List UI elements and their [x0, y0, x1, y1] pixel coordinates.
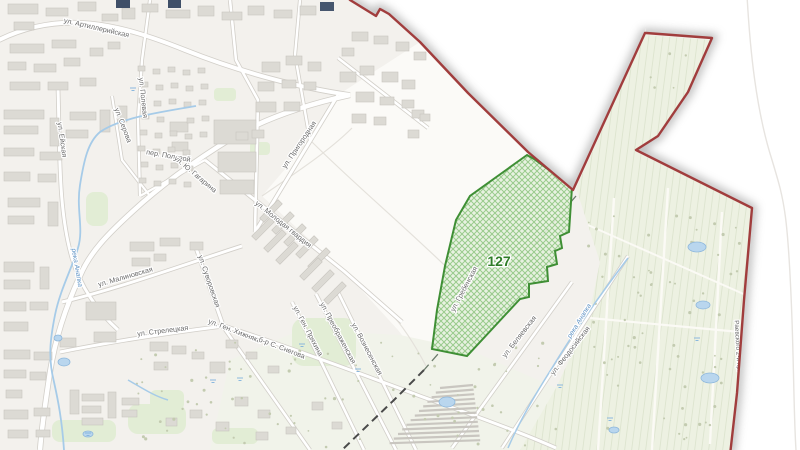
building	[139, 178, 146, 183]
tree-dot	[161, 390, 163, 392]
tree-dot	[293, 422, 295, 424]
tree-dot	[457, 411, 459, 413]
tree-dot	[637, 292, 639, 294]
tree-dot	[624, 319, 626, 321]
building	[141, 162, 148, 167]
tree-dot	[685, 54, 687, 56]
tree-dot	[141, 381, 143, 383]
tree-dot	[709, 424, 711, 426]
building	[252, 130, 264, 138]
tree-dot	[165, 366, 167, 368]
building	[154, 101, 161, 106]
tree-dot	[720, 382, 723, 385]
building	[352, 114, 366, 123]
tree-dot	[651, 283, 653, 285]
building	[356, 92, 374, 102]
building	[153, 69, 160, 74]
tree-dot	[588, 222, 590, 224]
tree-dot	[290, 415, 292, 417]
building	[199, 100, 206, 105]
building	[222, 12, 242, 20]
tree-dot	[606, 374, 608, 376]
tree-dot	[688, 311, 691, 314]
tree-dot	[477, 443, 480, 446]
building	[256, 432, 268, 440]
tree-dot	[674, 283, 676, 285]
building	[169, 99, 176, 104]
building	[52, 40, 76, 48]
tree-dot	[592, 321, 595, 324]
building	[374, 36, 388, 44]
building	[210, 362, 225, 373]
building	[154, 362, 168, 370]
building	[48, 82, 68, 90]
tree-dot	[294, 358, 296, 360]
tree-dot	[140, 358, 142, 360]
building	[414, 52, 426, 60]
building	[6, 390, 22, 398]
tree-dot	[689, 216, 692, 219]
building	[142, 4, 158, 12]
tree-dot	[541, 342, 544, 345]
tree-dot	[648, 270, 650, 272]
tree-dot	[713, 222, 716, 225]
tree-dot	[433, 365, 436, 368]
building	[360, 66, 374, 75]
building	[168, 67, 175, 72]
building	[108, 42, 120, 49]
tree-dot	[633, 276, 635, 278]
tree-dot	[430, 384, 432, 386]
tree-dot	[672, 344, 675, 347]
tree-dot	[494, 363, 496, 365]
building	[108, 392, 116, 418]
building	[116, 0, 130, 8]
pond	[58, 358, 70, 366]
tree-dot	[650, 76, 652, 78]
building	[60, 338, 76, 347]
building	[4, 148, 34, 156]
building	[8, 216, 34, 224]
parcel-number-label: 127	[487, 253, 511, 269]
tree-dot	[714, 366, 716, 368]
tree-dot	[603, 361, 606, 364]
tree-dot	[225, 428, 227, 430]
building	[64, 58, 80, 66]
tree-dot	[524, 444, 526, 446]
tree-dot	[536, 405, 539, 408]
tree-dot	[233, 437, 235, 439]
tree-dot	[355, 364, 357, 366]
building	[190, 242, 203, 250]
building	[214, 120, 256, 144]
tree-dot	[634, 346, 637, 349]
building	[156, 85, 163, 90]
building	[10, 82, 40, 90]
building	[187, 118, 194, 123]
tree-dot	[478, 368, 481, 371]
tree-dot	[698, 423, 701, 426]
tree-dot	[187, 400, 190, 403]
building	[140, 130, 147, 135]
tree-dot	[702, 371, 704, 373]
tree-dot	[506, 430, 508, 432]
tree-dot	[240, 368, 242, 370]
tree-dot	[642, 332, 644, 334]
pond	[83, 431, 93, 437]
tree-dot	[457, 394, 459, 396]
tree-dot	[722, 233, 725, 236]
building	[246, 352, 257, 359]
building	[248, 6, 264, 15]
building	[308, 62, 321, 71]
tree-dot	[412, 395, 415, 398]
building	[86, 302, 116, 320]
building	[183, 70, 190, 75]
tree-dot	[696, 229, 698, 231]
tree-dot	[669, 368, 672, 371]
building	[274, 10, 292, 18]
building	[166, 10, 190, 18]
tree-dot	[705, 422, 707, 424]
tree-dot	[154, 353, 157, 356]
building	[30, 302, 48, 310]
tree-dot	[677, 355, 680, 358]
tree-dot	[681, 407, 684, 410]
tree-dot	[269, 412, 272, 415]
building	[66, 130, 88, 138]
pond	[609, 427, 619, 433]
tree-dot	[166, 430, 168, 432]
building	[78, 2, 96, 11]
tree-dot	[241, 397, 243, 399]
building	[70, 390, 79, 414]
building	[102, 14, 118, 21]
tree-dot	[457, 435, 459, 437]
tree-dot	[288, 369, 291, 372]
tree-dot	[537, 365, 539, 367]
pond	[54, 335, 62, 341]
tree-dot	[617, 356, 619, 358]
building	[256, 102, 276, 112]
building	[220, 180, 254, 194]
building	[190, 410, 202, 418]
building	[186, 86, 193, 91]
building	[184, 182, 191, 187]
building	[320, 2, 334, 11]
tree-dot	[538, 358, 540, 360]
tree-dot	[277, 423, 279, 425]
tree-dot	[210, 401, 213, 404]
building	[396, 42, 409, 51]
pond	[696, 301, 710, 309]
tree-dot	[205, 376, 207, 378]
building	[38, 174, 56, 182]
building	[122, 410, 137, 417]
tree-dot	[675, 215, 678, 218]
tree-dot	[702, 292, 704, 294]
building	[352, 32, 368, 41]
tree-dot	[324, 397, 326, 399]
tree-dot	[476, 407, 478, 409]
tree-dot	[618, 255, 621, 258]
building	[380, 97, 394, 105]
building	[138, 66, 145, 71]
building	[48, 202, 58, 226]
building	[4, 410, 28, 419]
building	[420, 114, 430, 121]
tree-dot	[453, 420, 456, 423]
building	[8, 62, 26, 70]
tree-dot	[357, 380, 359, 382]
building	[282, 80, 296, 88]
tree-dot	[627, 345, 629, 347]
tree-dot	[613, 215, 615, 217]
building	[30, 372, 46, 380]
building	[342, 48, 354, 56]
tree-dot	[633, 336, 636, 339]
building	[160, 238, 180, 246]
tree-dot	[229, 361, 231, 363]
building	[4, 172, 30, 181]
tree-dot	[290, 363, 292, 365]
tree-dot	[196, 403, 198, 405]
building	[40, 267, 49, 289]
tree-dot	[474, 385, 477, 388]
building	[94, 332, 116, 342]
building	[14, 22, 34, 30]
tree-dot	[203, 389, 206, 392]
building	[34, 352, 52, 360]
tree-dot	[713, 405, 716, 408]
tree-dot	[730, 273, 733, 276]
tree-dot	[181, 408, 183, 410]
building	[340, 72, 356, 82]
map-canvas[interactable]: ул. Артиллерийскаяул. Полеваяул. Серовап…	[0, 0, 800, 450]
building	[408, 130, 419, 138]
building	[154, 181, 161, 186]
building	[169, 179, 176, 184]
tree-dot	[718, 313, 721, 316]
building	[286, 427, 296, 434]
tree-dot	[437, 414, 440, 417]
building	[130, 242, 154, 251]
building	[80, 78, 96, 86]
building	[4, 126, 38, 134]
tree-dot	[738, 242, 741, 245]
building	[40, 152, 62, 160]
building	[157, 117, 164, 122]
building	[286, 56, 302, 65]
building	[155, 133, 162, 138]
building	[374, 117, 386, 125]
tree-dot	[639, 361, 642, 364]
tree-dot	[159, 420, 162, 423]
building	[268, 366, 279, 373]
tree-dot	[327, 353, 329, 355]
building	[170, 131, 177, 136]
building	[4, 280, 30, 289]
building	[70, 112, 96, 120]
tree-dot	[678, 433, 680, 435]
building	[172, 346, 186, 354]
tree-dot	[392, 356, 394, 358]
tree-dot	[684, 385, 687, 388]
tree-dot	[611, 358, 613, 360]
tree-dot	[595, 228, 598, 231]
tree-dot	[650, 271, 653, 274]
building	[156, 165, 163, 170]
tree-dot	[417, 353, 419, 355]
building	[312, 402, 323, 410]
tree-dot	[137, 393, 139, 395]
building	[4, 302, 26, 311]
tree-dot	[172, 418, 175, 421]
tree-dot	[693, 300, 696, 303]
building	[200, 132, 207, 137]
tree-dot	[451, 417, 454, 420]
tree-dot	[720, 358, 722, 360]
tree-dot	[640, 295, 642, 297]
building	[258, 82, 274, 91]
building	[4, 350, 30, 359]
building	[216, 422, 229, 431]
tree-dot	[653, 86, 656, 89]
building	[90, 48, 103, 56]
tree-dot	[325, 446, 328, 449]
building	[82, 394, 104, 401]
tree-dot	[392, 389, 395, 392]
building	[218, 152, 256, 172]
tree-dot	[500, 411, 502, 413]
tree-dot	[243, 442, 246, 445]
building	[402, 80, 415, 89]
building	[226, 340, 238, 348]
tree-dot	[604, 253, 607, 256]
building	[170, 122, 188, 132]
building	[34, 64, 56, 72]
tree-dot	[669, 281, 671, 283]
building	[236, 132, 248, 140]
building	[198, 68, 205, 73]
building	[34, 408, 50, 416]
building	[402, 100, 414, 108]
building	[185, 134, 192, 139]
building	[8, 4, 38, 14]
building	[122, 398, 139, 405]
tree-dot	[593, 346, 595, 348]
tree-dot	[587, 245, 590, 248]
tree-dot	[195, 349, 197, 351]
tree-dot	[308, 430, 310, 432]
tree-dot	[190, 379, 193, 382]
building	[8, 198, 40, 207]
pond	[688, 242, 706, 252]
building	[192, 352, 204, 359]
building	[150, 342, 168, 351]
building	[332, 422, 342, 429]
building	[4, 110, 44, 119]
tree-dot	[683, 438, 685, 440]
building	[202, 116, 209, 121]
tree-dot	[717, 254, 719, 256]
building	[304, 82, 316, 90]
building	[258, 410, 270, 418]
tree-dot	[144, 437, 147, 440]
tree-dot	[342, 398, 344, 400]
building	[198, 6, 214, 16]
map-viewport[interactable]: ул. Артиллерийскаяул. Полеваяул. Серовап…	[0, 0, 800, 450]
tree-dot	[491, 404, 494, 407]
tree-dot	[206, 414, 208, 416]
building	[4, 370, 26, 378]
building	[138, 146, 145, 151]
building	[36, 430, 50, 437]
building	[284, 102, 300, 111]
building	[168, 0, 181, 8]
tree-dot	[359, 438, 361, 440]
tree-dot	[663, 417, 665, 419]
tree-dot	[380, 342, 382, 344]
tree-dot	[231, 398, 234, 401]
tree-dot	[249, 375, 252, 378]
building	[4, 262, 34, 272]
tree-dot	[482, 408, 485, 411]
tree-dot	[142, 435, 145, 438]
building	[8, 430, 28, 438]
building	[262, 62, 280, 72]
tree-dot	[714, 355, 716, 357]
building	[10, 44, 44, 53]
tree-dot	[684, 423, 687, 426]
tree-dot	[736, 270, 738, 272]
tree-dot	[668, 52, 671, 55]
building	[154, 254, 166, 261]
building	[201, 84, 208, 89]
tree-dot	[647, 234, 650, 237]
building	[171, 83, 178, 88]
tree-dot	[601, 276, 603, 278]
pond	[439, 397, 455, 407]
building	[300, 6, 316, 15]
tree-dot	[686, 437, 688, 439]
tree-dot	[555, 428, 558, 431]
tree-dot	[735, 227, 737, 229]
building	[82, 418, 103, 425]
tree-dot	[617, 385, 619, 387]
tree-dot	[234, 342, 236, 344]
building	[382, 72, 398, 82]
pond	[701, 373, 719, 383]
building	[82, 406, 101, 413]
tree-dot	[228, 368, 231, 371]
building	[122, 8, 135, 19]
tree-dot	[673, 87, 675, 89]
tree-dot	[424, 418, 427, 421]
building	[4, 322, 28, 331]
tree-dot	[505, 370, 507, 372]
tree-dot	[333, 397, 336, 400]
